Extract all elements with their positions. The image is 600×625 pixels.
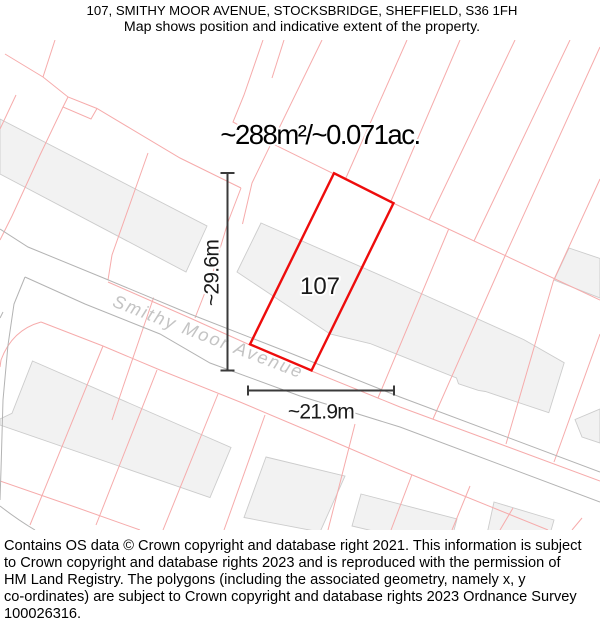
svg-text:107: 107 (300, 273, 340, 300)
svg-text:~288m²/~0.071ac.: ~288m²/~0.071ac. (220, 119, 419, 150)
svg-text:~29.6m: ~29.6m (201, 240, 224, 306)
svg-text:~21.9m: ~21.9m (288, 401, 354, 424)
